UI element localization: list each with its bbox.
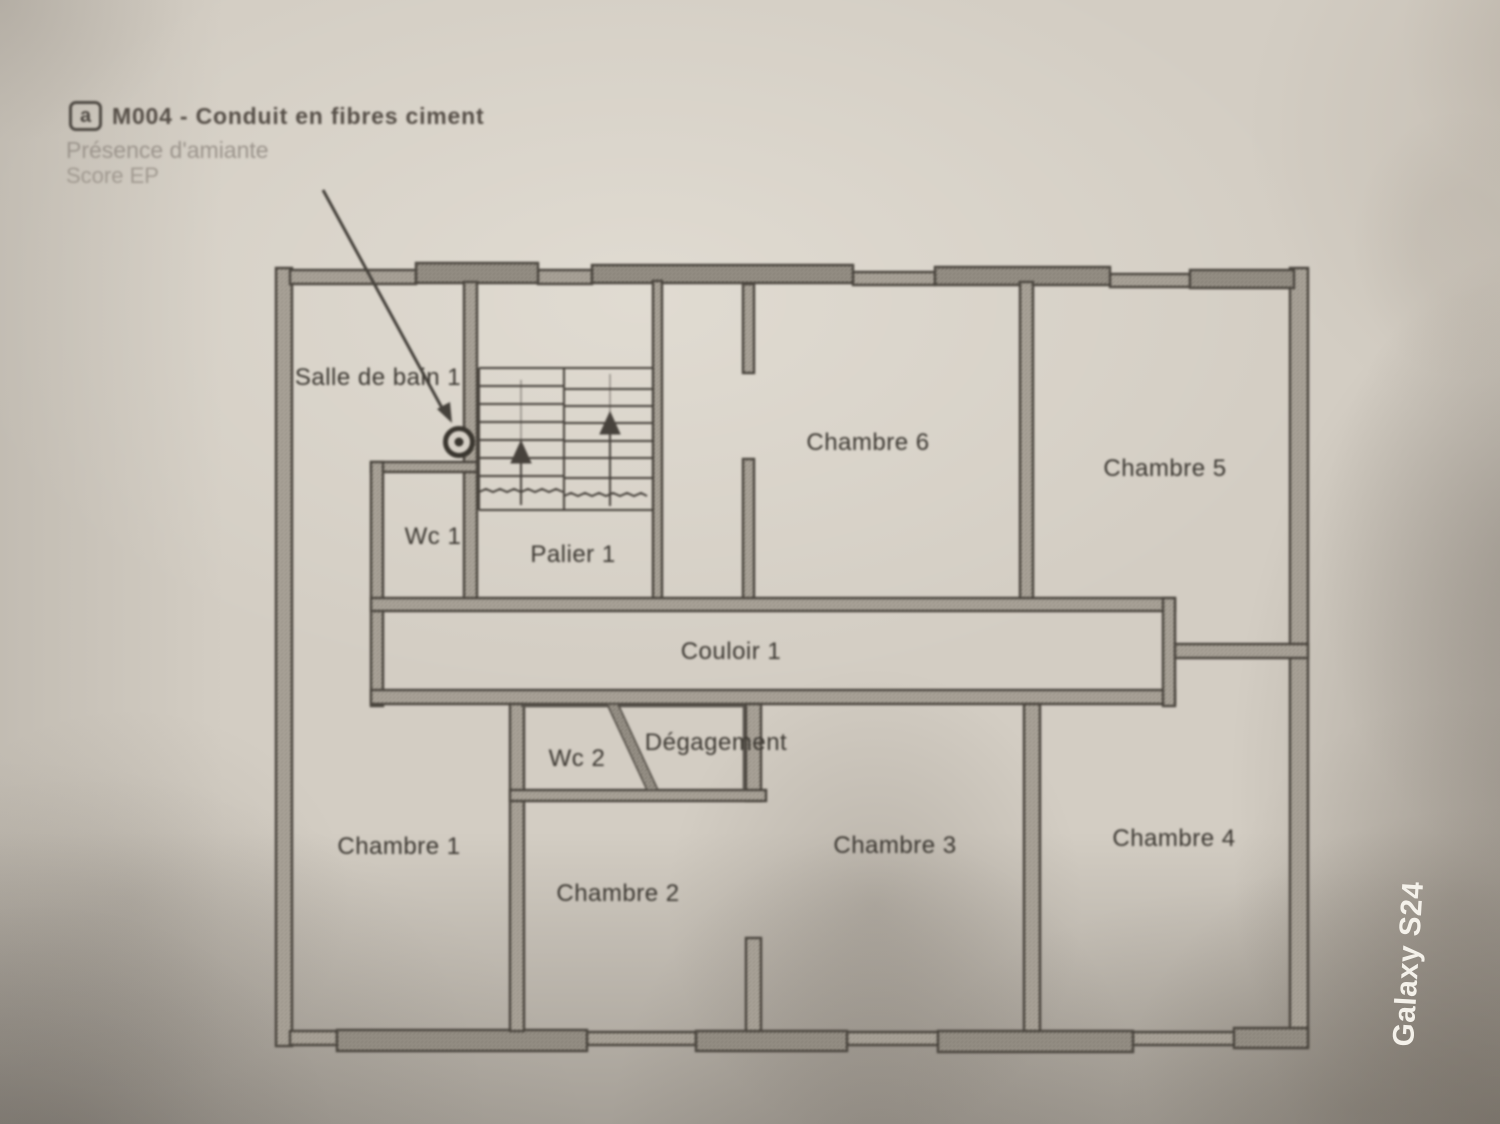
- svg-text:Chambre 3: Chambre 3: [833, 832, 956, 859]
- svg-text:Wc 2: Wc 2: [549, 745, 606, 772]
- svg-text:Wc 1: Wc 1: [405, 523, 462, 550]
- svg-text:Salle de bain 1: Salle de bain 1: [295, 364, 461, 391]
- svg-text:Chambre 6: Chambre 6: [806, 429, 929, 456]
- svg-text:Dégagement: Dégagement: [645, 729, 787, 756]
- svg-text:Chambre 4: Chambre 4: [1112, 825, 1235, 852]
- svg-text:Chambre 2: Chambre 2: [556, 880, 679, 907]
- svg-text:Couloir 1: Couloir 1: [681, 638, 782, 665]
- svg-text:Palier 1: Palier 1: [530, 541, 615, 568]
- svg-text:Chambre 5: Chambre 5: [1103, 455, 1226, 482]
- svg-text:Chambre 1: Chambre 1: [337, 833, 460, 860]
